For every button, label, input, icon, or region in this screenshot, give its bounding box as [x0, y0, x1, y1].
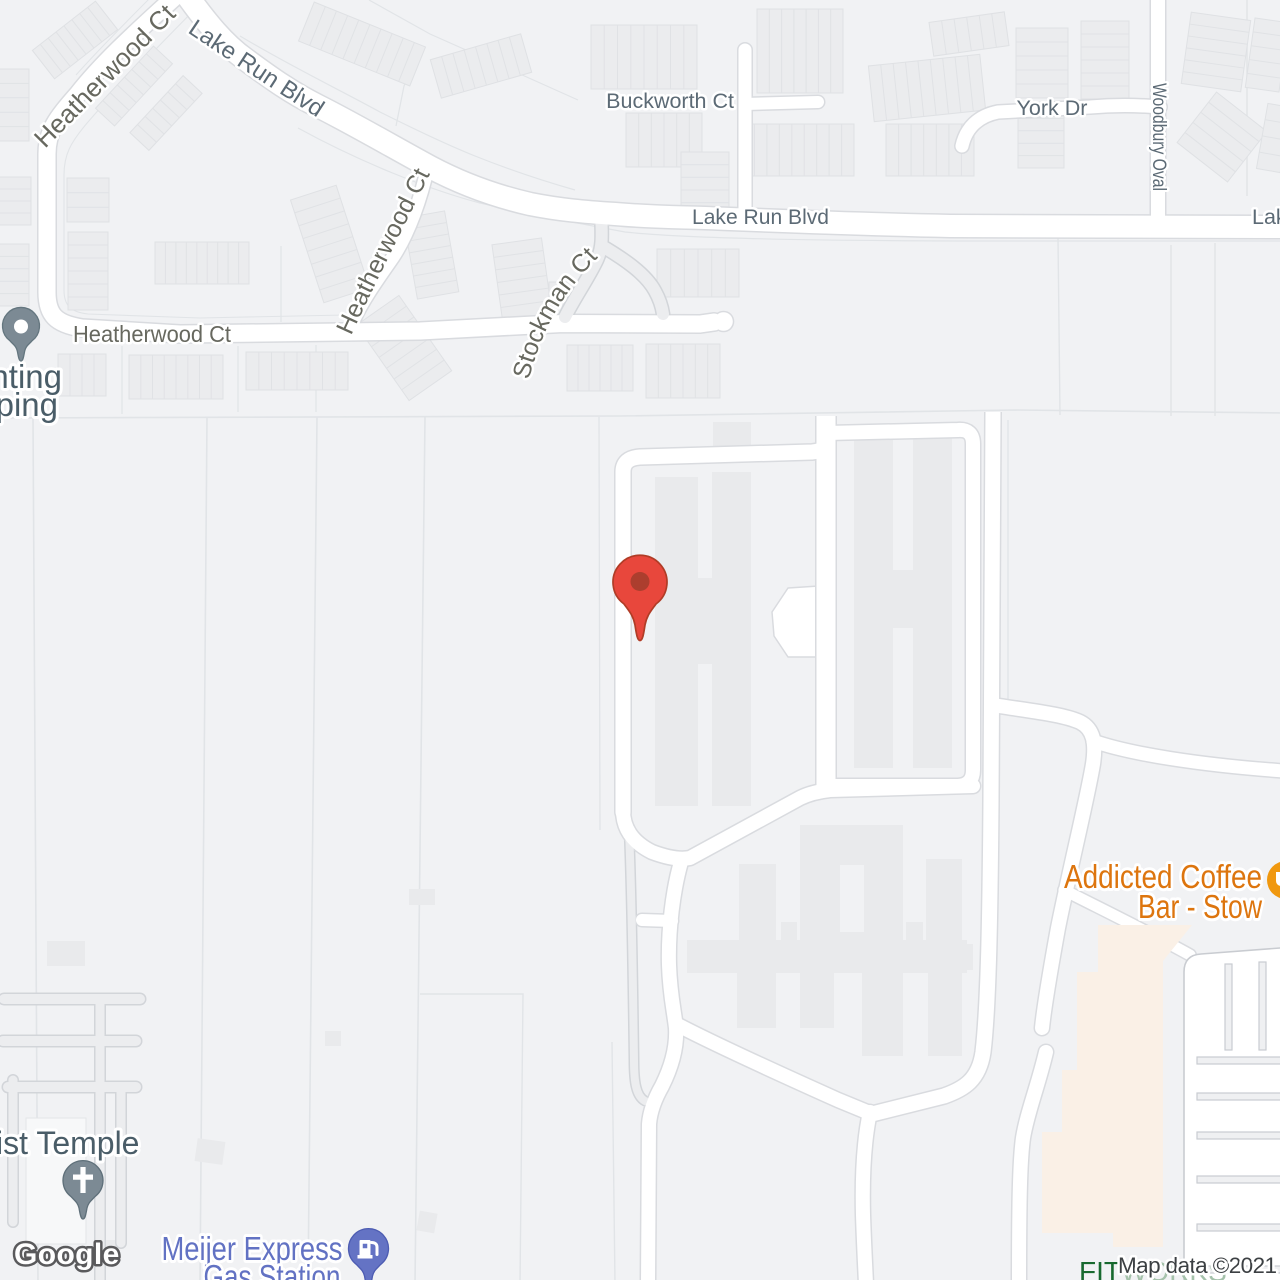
svg-text:Map data ©2021: Map data ©2021 [1118, 1253, 1277, 1278]
svg-text:ist Temple: ist Temple [0, 1125, 139, 1161]
svg-text:Gas Station: Gas Station [204, 1258, 341, 1280]
svg-text:eping: eping [0, 386, 58, 423]
svg-text:Woodbury Oval: Woodbury Oval [1148, 83, 1169, 191]
svg-text:Google: Google [14, 1238, 120, 1271]
svg-text:Lake Run: Lake Run [1252, 205, 1280, 229]
svg-text:Lake Run Blvd: Lake Run Blvd [692, 205, 829, 229]
svg-text:York Dr: York Dr [1017, 96, 1088, 120]
svg-text:Buckworth Ct: Buckworth Ct [606, 89, 734, 113]
svg-text:Bar - Stow: Bar - Stow [1138, 888, 1262, 925]
svg-text:Heatherwood Ct: Heatherwood Ct [73, 321, 232, 347]
